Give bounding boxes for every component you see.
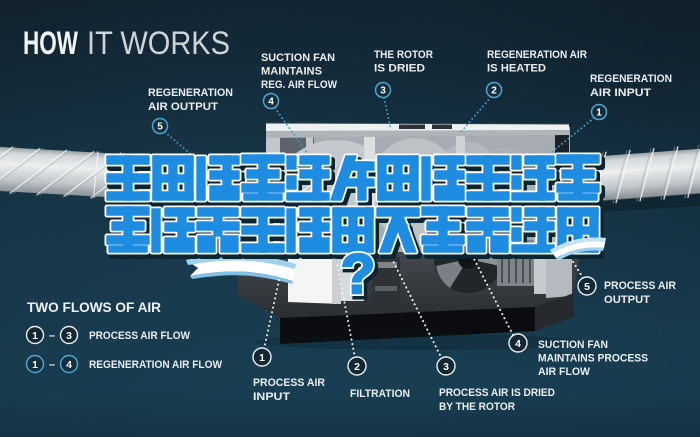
svg-text:MAINTAINS: MAINTAINS	[261, 66, 322, 78]
svg-text:BY THE ROTOR: BY THE ROTOR	[439, 401, 515, 413]
svg-text:IS DRIED: IS DRIED	[374, 63, 425, 75]
svg-text:1: 1	[32, 330, 38, 342]
svg-text:INPUT: INPUT	[253, 391, 290, 403]
svg-text:1: 1	[596, 108, 602, 119]
svg-text:FILTRATION: FILTRATION	[350, 388, 410, 400]
svg-text:3: 3	[66, 330, 72, 342]
svg-text:HOW: HOW	[23, 25, 79, 61]
svg-text:REGENERATION: REGENERATION	[590, 73, 672, 85]
svg-text:TWO FLOWS OF AIR: TWO FLOWS OF AIR	[27, 299, 161, 315]
svg-text:–: –	[49, 330, 55, 342]
svg-text:SUCTION FAN: SUCTION FAN	[538, 339, 608, 351]
svg-text:IS HEATED: IS HEATED	[487, 63, 546, 75]
svg-text:PROCESS AIR: PROCESS AIR	[604, 280, 676, 292]
svg-text:OUTPUT: OUTPUT	[604, 294, 650, 306]
svg-text:AIR OUTPUT: AIR OUTPUT	[148, 101, 218, 113]
svg-text:5: 5	[157, 122, 163, 133]
svg-text:1: 1	[32, 359, 38, 371]
svg-text:3: 3	[443, 361, 449, 373]
svg-text:1: 1	[259, 352, 265, 364]
svg-text:IT WORKS: IT WORKS	[87, 25, 230, 61]
svg-text:?: ?	[341, 242, 375, 305]
svg-text:SUCTION FAN: SUCTION FAN	[261, 52, 335, 64]
svg-text:5: 5	[584, 281, 590, 293]
svg-text:4: 4	[515, 338, 521, 350]
svg-text:AIR FLOW: AIR FLOW	[538, 366, 591, 378]
svg-text:3: 3	[380, 86, 386, 97]
svg-text:REGENERATION AIR FLOW: REGENERATION AIR FLOW	[89, 359, 223, 371]
svg-text:MAINTAINS PROCESS: MAINTAINS PROCESS	[538, 353, 648, 365]
svg-text:2: 2	[491, 86, 497, 97]
svg-text:PROCESS AIR FLOW: PROCESS AIR FLOW	[89, 330, 191, 342]
svg-text:AIR INPUT: AIR INPUT	[590, 87, 651, 99]
svg-text:REG. AIR FLOW: REG. AIR FLOW	[261, 79, 338, 91]
svg-text:PROCESS AIR IS DRIED: PROCESS AIR IS DRIED	[439, 387, 555, 399]
svg-text:REGENERATION: REGENERATION	[148, 87, 233, 99]
svg-text:THE ROTOR: THE ROTOR	[374, 49, 433, 61]
svg-text:PROCESS AIR: PROCESS AIR	[253, 377, 325, 389]
svg-text:4: 4	[66, 359, 72, 371]
svg-text:4: 4	[268, 97, 274, 108]
svg-text:2: 2	[354, 361, 360, 373]
svg-text:REGENERATION AIR: REGENERATION AIR	[487, 49, 587, 61]
svg-text:–: –	[49, 359, 55, 371]
